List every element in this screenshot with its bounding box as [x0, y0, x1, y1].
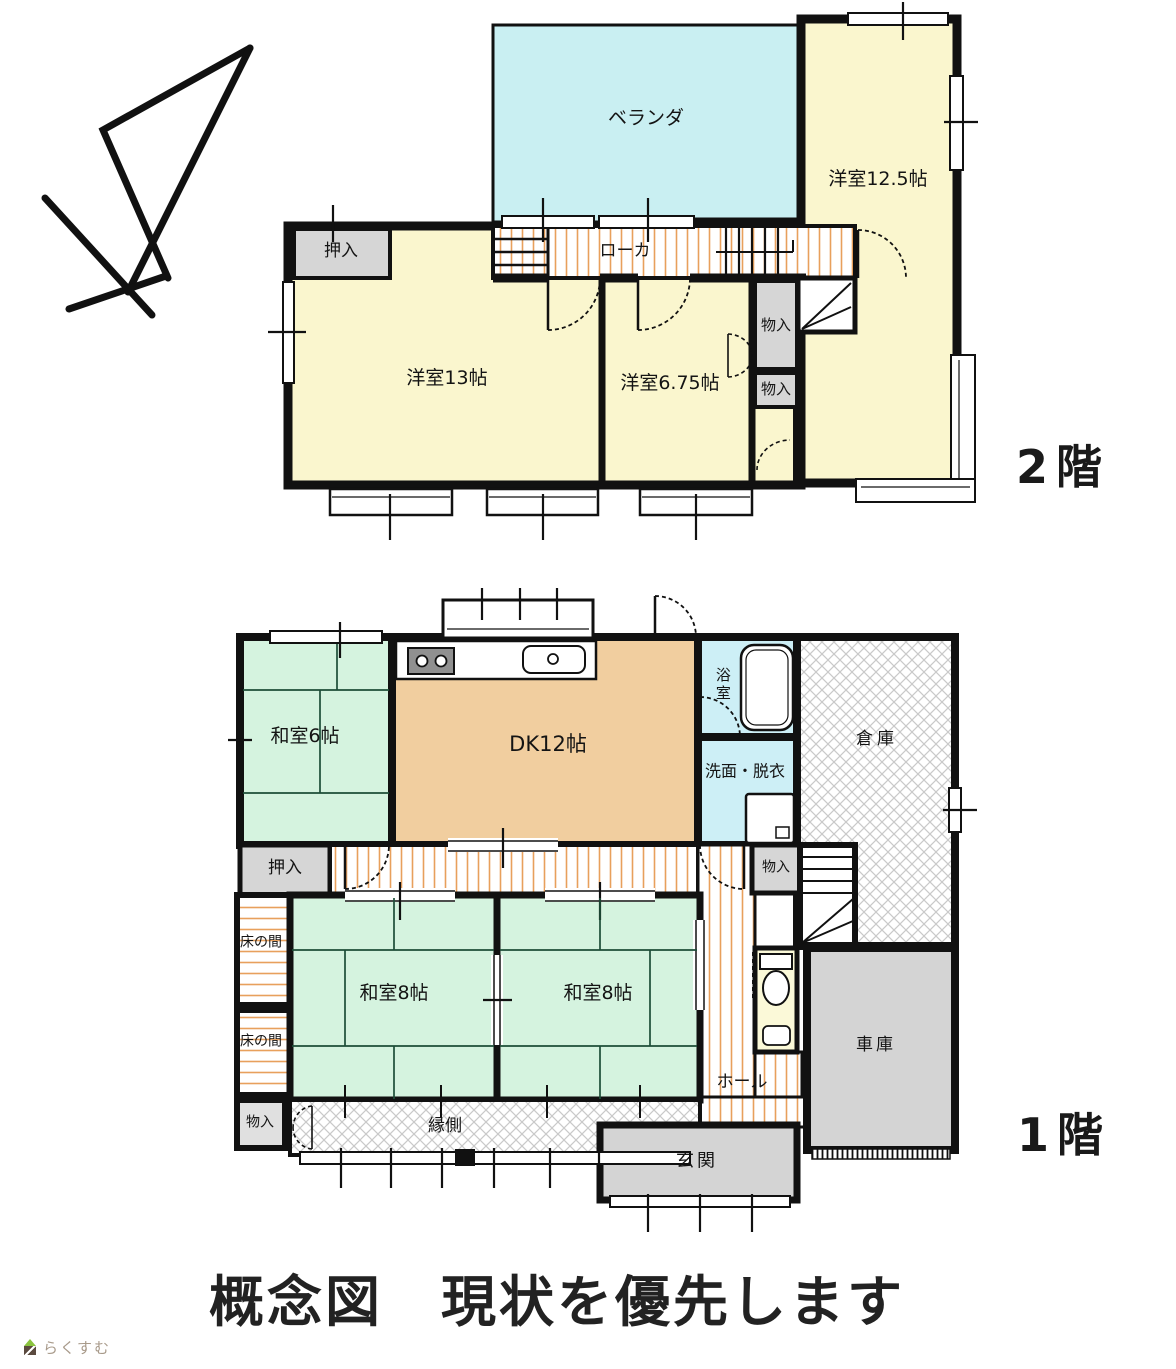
label-tokonoma-lower: 床の間	[240, 1035, 282, 1050]
label-engawa: 縁側	[428, 1118, 462, 1136]
label-warehouse: 倉庫	[856, 731, 898, 749]
label-west675: 洋室6.75帖	[620, 374, 719, 394]
label-washroom: 洗面・脱衣	[705, 764, 785, 781]
stove-icon	[408, 648, 454, 674]
label-washitsu8-right: 和室8帖	[563, 984, 632, 1004]
label-bath: 浴室	[714, 667, 730, 703]
logo-text: らくすむ	[43, 1337, 111, 1358]
label-veranda: ベランダ	[608, 109, 684, 129]
hand-basin-icon	[763, 1026, 790, 1045]
floorplan-page: ベランダ 洋室12.5帖 押入 ローカ 洋室13帖 洋室6.75帖 物入 物入 …	[0, 0, 1176, 1369]
label-floor1: 1階	[1017, 1111, 1111, 1159]
washer-icon	[746, 794, 794, 843]
logo: らくすむ	[22, 1337, 111, 1358]
label-west13: 洋室13帖	[406, 369, 487, 389]
label-hall: ホール	[717, 1074, 768, 1092]
toilet-icon	[760, 954, 792, 1005]
label-west125: 洋室12.5帖	[828, 170, 927, 190]
label-entrance: 玄関	[676, 1153, 718, 1172]
floor2-plan	[268, 2, 978, 540]
bathtub-icon	[741, 645, 793, 730]
logo-house-icon	[22, 1339, 38, 1356]
label-floor2: 2階	[1016, 443, 1110, 491]
floor1-plan	[228, 588, 977, 1232]
tokonoma-lower	[237, 1010, 290, 1095]
label-corridor-2f: ローカ	[600, 243, 651, 261]
label-monoiri-upper-2f: 物入	[761, 318, 791, 334]
kitchen-counter	[396, 641, 596, 679]
label-oshiire-2f: 押入	[324, 243, 358, 261]
corridor-1f	[330, 845, 698, 895]
floorplan-drawing	[0, 0, 1176, 1369]
label-dk: DK12帖	[509, 733, 587, 755]
page-title: 概念図 現状を優先します	[209, 1257, 905, 1337]
sink-icon	[523, 646, 585, 673]
label-oshiire-1f: 押入	[268, 860, 302, 878]
label-washitsu6: 和室6帖	[270, 727, 339, 747]
label-monoiri-bottomleft: 物入	[246, 1116, 274, 1131]
label-monoiri-lower-2f: 物入	[761, 382, 791, 398]
label-monoiri-stairs: 物入	[762, 861, 790, 876]
label-tokonoma-upper: 床の間	[240, 936, 282, 951]
kitchen-bay-window	[443, 588, 593, 638]
label-washitsu8-left: 和室8帖	[359, 984, 428, 1004]
north-arrow-icon	[45, 48, 250, 315]
garage-door	[812, 1149, 950, 1159]
label-garage: 車庫	[856, 1037, 896, 1055]
stairs-1f	[800, 845, 855, 945]
